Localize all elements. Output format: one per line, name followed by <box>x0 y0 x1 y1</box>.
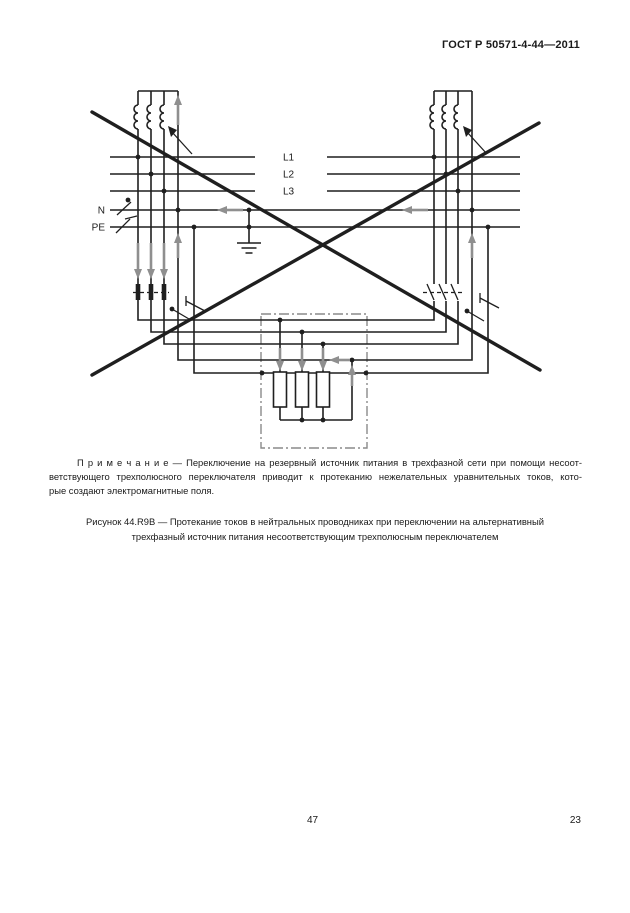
switch-actuator-icon <box>465 293 499 321</box>
main-source-transformer <box>134 91 192 154</box>
label-l3: L3 <box>283 187 295 198</box>
transformer-pointer-icon <box>168 126 192 154</box>
pe-disconnect-icon <box>116 216 137 233</box>
transformer-pointer-icon <box>463 126 487 154</box>
ground-symbol <box>237 210 261 253</box>
junction-dots <box>136 155 491 423</box>
figure-note: П р и м е ч а н и е — Переключение на ре… <box>49 456 582 498</box>
resistor-load <box>274 320 353 420</box>
page-number-right: 23 <box>570 815 581 826</box>
caption-line: Рисунок 44.R9B — Протекание токов в нейт… <box>0 514 630 529</box>
neutral-disconnect-icon <box>117 198 131 215</box>
resistor-icon <box>317 372 330 407</box>
pe-conductor <box>194 227 488 373</box>
conductor-labels: L1 L2 L3 N PE <box>92 153 295 234</box>
resistor-icon <box>296 372 309 407</box>
page-number-center: 47 <box>307 815 318 826</box>
conductors <box>138 91 488 373</box>
current-arrows <box>134 95 476 386</box>
caption-line: трехфазный источник питания несоответств… <box>0 529 630 544</box>
document-page: ГОСТ Р 50571-4-44—2011 <box>0 0 630 913</box>
figure-caption: Рисунок 44.R9B — Протекание токов в нейт… <box>0 514 630 544</box>
label-l1: L1 <box>283 153 295 164</box>
note-line: ветствующего трехполюсного переключателя… <box>49 470 582 484</box>
label-l2: L2 <box>283 170 295 181</box>
note-line: рые создают электромагнитные поля. <box>49 484 582 498</box>
resistor-icon <box>274 372 287 407</box>
note-line: П р и м е ч а н и е — Переключение на ре… <box>49 456 582 470</box>
label-pe: PE <box>92 223 106 234</box>
label-n: N <box>98 206 105 217</box>
